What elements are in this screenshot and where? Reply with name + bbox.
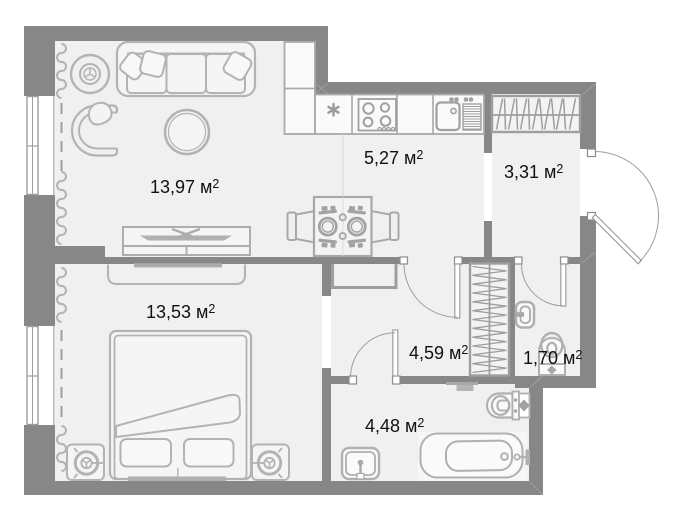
svg-text:1,70 м2: 1,70 м2	[523, 348, 582, 368]
svg-text:13,97 м2: 13,97 м2	[150, 177, 219, 197]
svg-text:4,59 м2: 4,59 м2	[409, 343, 468, 363]
svg-text:3,31 м2: 3,31 м2	[504, 162, 563, 182]
svg-text:13,53 м2: 13,53 м2	[146, 302, 215, 322]
svg-text:5,27 м2: 5,27 м2	[364, 148, 423, 168]
svg-text:4,48 м2: 4,48 м2	[365, 416, 424, 436]
